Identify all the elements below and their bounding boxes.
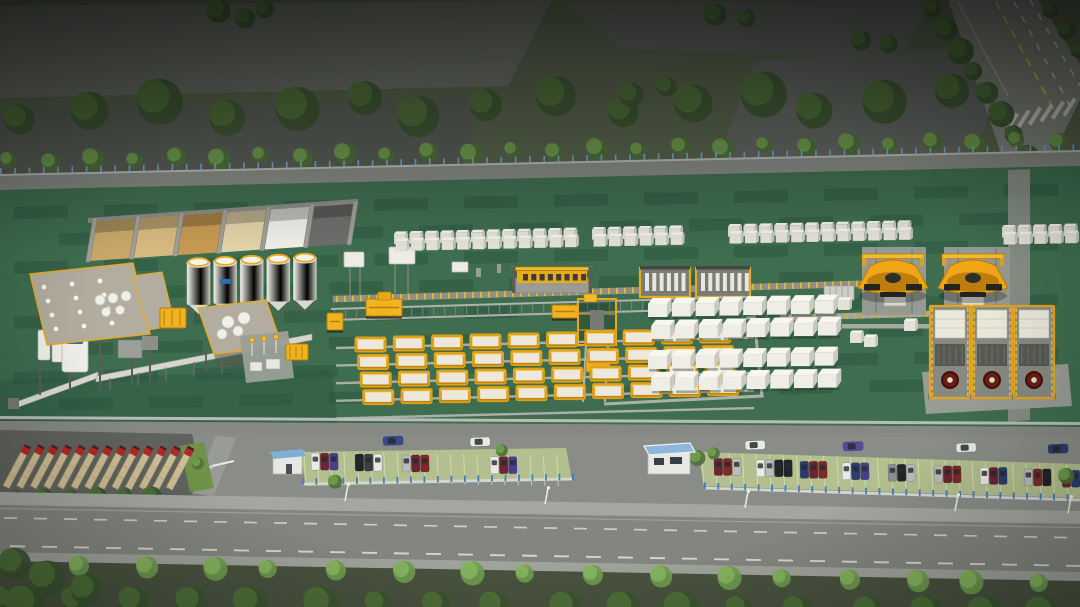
render-stage [0,0,1080,607]
factory-aerial-scene [0,0,1080,607]
vignette-overlay [0,0,1080,607]
